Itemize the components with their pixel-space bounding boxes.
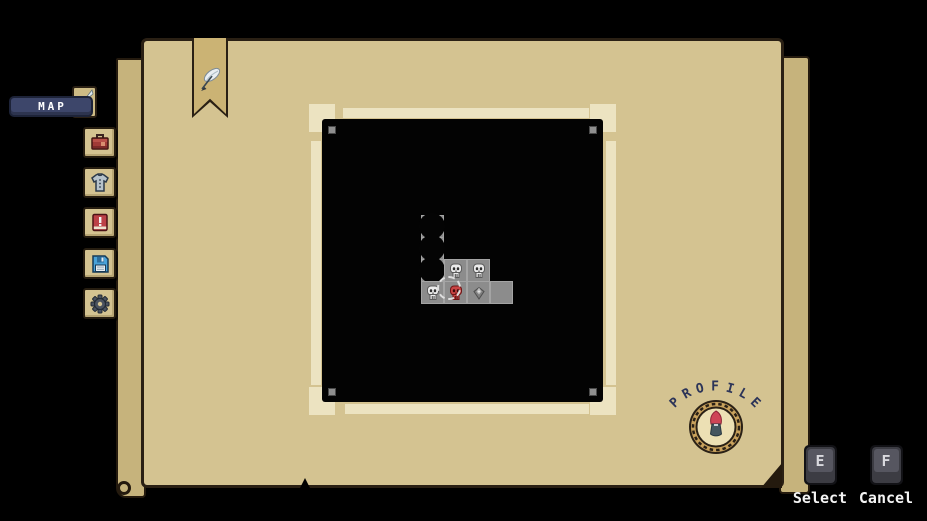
pin-square-icon xyxy=(589,388,597,396)
sidebar-item-quests[interactable] xyxy=(83,207,116,238)
page-corner-fold xyxy=(761,463,782,488)
key-E[interactable]: E xyxy=(804,445,837,485)
tab-map[interactable]: MAP xyxy=(9,96,93,117)
map-cursor xyxy=(437,276,461,300)
map-room-treasure[interactable] xyxy=(467,281,490,304)
control-select: E Select xyxy=(786,445,854,507)
floppy-disk-icon xyxy=(89,253,111,275)
keycap-face: F xyxy=(872,447,901,483)
profile-letter: F xyxy=(711,380,719,395)
diamond-icon xyxy=(471,285,487,301)
briefcase-icon xyxy=(89,132,111,154)
sidebar-item-inventory[interactable] xyxy=(83,127,116,158)
map-frame-bar xyxy=(606,141,616,385)
keycap-letter: F xyxy=(874,449,899,472)
gear-icon xyxy=(89,293,111,315)
page-tear xyxy=(300,478,310,488)
sidebar-item-equipment[interactable] xyxy=(83,167,116,198)
keycap-face: E xyxy=(806,447,835,483)
map-frame-bar xyxy=(311,141,321,385)
skull-icon xyxy=(471,263,487,279)
key-action-label: Select xyxy=(786,489,854,507)
alert-book-icon xyxy=(89,212,111,234)
page-curl xyxy=(117,481,131,495)
shirt-icon xyxy=(89,172,111,194)
map-frame-bar xyxy=(345,404,589,414)
map-frame-bar xyxy=(343,108,589,118)
sidebar-item-settings[interactable] xyxy=(83,288,116,319)
key-action-label: Cancel xyxy=(852,489,920,507)
pin-square-icon xyxy=(328,126,336,134)
sidebar-item-save[interactable] xyxy=(83,248,116,279)
pin-square-icon xyxy=(589,126,597,134)
keycap-letter: E xyxy=(808,449,833,472)
character-portrait-icon xyxy=(711,411,722,436)
pin-square-icon xyxy=(328,388,336,396)
map-room-empty[interactable] xyxy=(490,281,513,304)
map-screen: MAP PROFILE xyxy=(0,0,927,521)
profile-medallion[interactable] xyxy=(687,398,745,456)
quill-feather-icon xyxy=(196,62,224,96)
map-room-enemy[interactable] xyxy=(467,259,490,282)
key-F[interactable]: F xyxy=(870,445,903,485)
control-cancel: F Cancel xyxy=(852,445,920,507)
